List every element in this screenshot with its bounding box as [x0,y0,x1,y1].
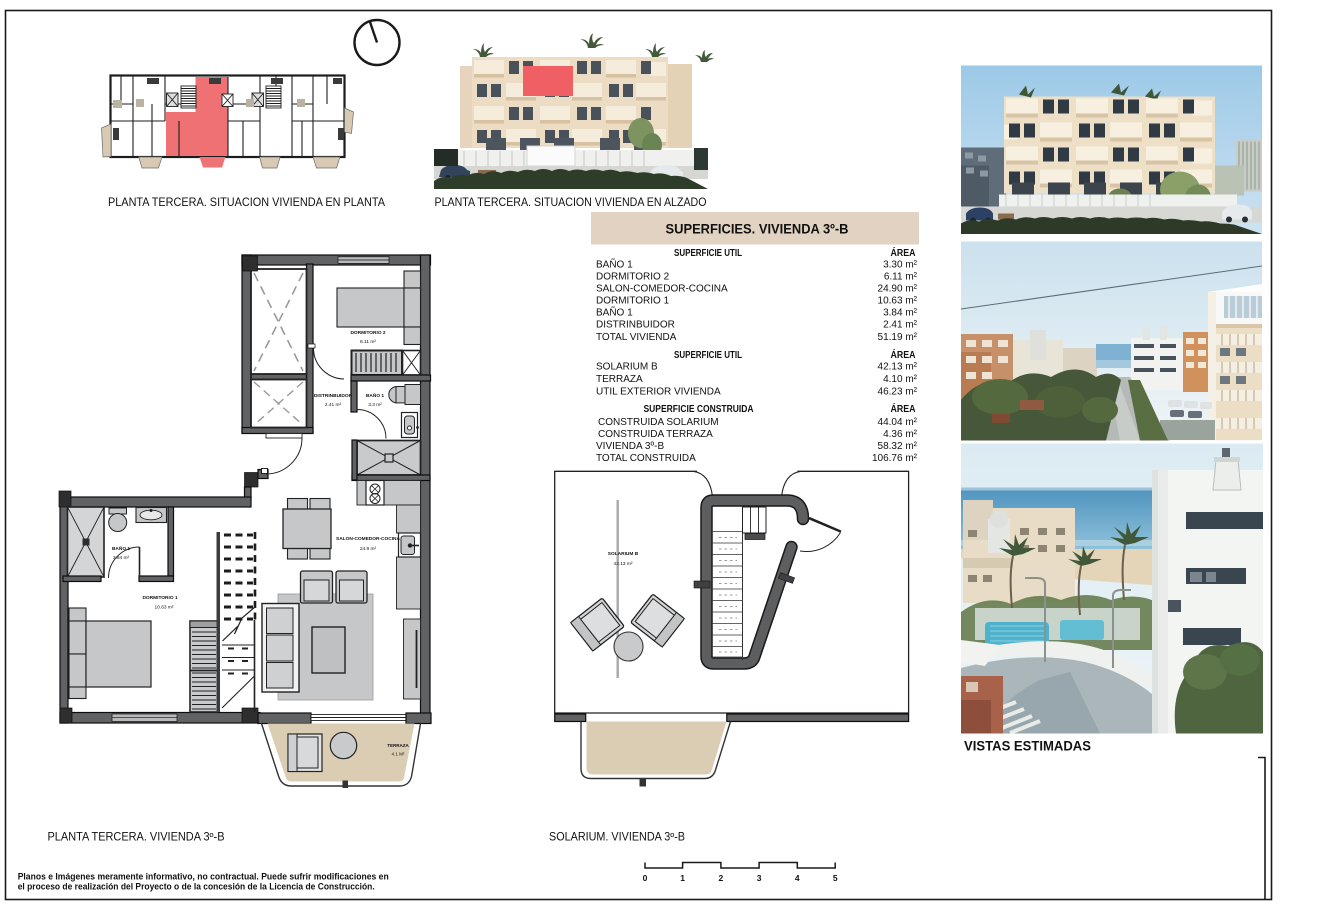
svg-text:CONSTRUIDA SOLARIUM: CONSTRUIDA SOLARIUM [598,417,719,428]
svg-text:44.04 m²: 44.04 m² [878,417,918,428]
svg-text:24.90 m²: 24.90 m² [878,284,918,295]
svg-text:24.9 m²: 24.9 m² [360,546,377,552]
svg-text:TOTAL VIVIENDA: TOTAL VIVIENDA [596,332,677,343]
svg-text:SOLARIUM B: SOLARIUM B [596,362,658,373]
svg-text:SUPERFICIE UTIL: SUPERFICIE UTIL [674,350,742,361]
svg-text:4: 4 [795,873,800,883]
svg-text:4.1 M²: 4.1 M² [392,752,405,757]
svg-text:DORMITORIO 1: DORMITORIO 1 [142,595,177,601]
svg-text:58.32 m²: 58.32 m² [878,441,918,452]
svg-text:DISTRINBUIDOR: DISTRINBUIDOR [596,320,675,331]
svg-text:SALON-COMEDOR-COCINA: SALON-COMEDOR-COCINA [336,536,400,542]
svg-text:3.30 m²: 3.30 m² [883,260,918,271]
svg-text:TERRAZA: TERRAZA [596,374,643,385]
svg-text:DORMITORIO 1: DORMITORIO 1 [596,296,670,307]
svg-text:BAÑO 1: BAÑO 1 [112,545,130,552]
svg-text:Planos e Imágenes meramente in: Planos e Imágenes meramente informativo,… [18,872,389,882]
svg-text:TOTAL CONSTRUIDA: TOTAL CONSTRUIDA [596,453,696,464]
svg-text:VISTAS ESTIMADAS: VISTAS ESTIMADAS [964,738,1091,754]
svg-text:51.19 m²: 51.19 m² [878,332,918,343]
svg-text:SOLARIUM B: SOLARIUM B [608,551,639,557]
svg-text:SOLARIUM. VIVIENDA 3º-B: SOLARIUM. VIVIENDA 3º-B [549,832,685,844]
svg-text:4.36 m²: 4.36 m² [883,429,918,440]
svg-text:el proceso de realización del: el proceso de realización del Proyecto o… [18,882,375,892]
svg-text:2: 2 [719,873,724,883]
svg-text:6.11 m²: 6.11 m² [884,272,918,283]
svg-text:PLANTA TERCERA. SITUACION VIVI: PLANTA TERCERA. SITUACION VIVIENDA EN PL… [108,197,385,209]
svg-text:ÁREA: ÁREA [891,348,916,361]
svg-text:ÁREA: ÁREA [891,402,916,415]
svg-text:42.13 m²: 42.13 m² [878,362,918,373]
svg-text:CONSTRUIDA TERRAZA: CONSTRUIDA TERRAZA [598,429,713,440]
svg-text:BAÑO 1: BAÑO 1 [596,306,633,319]
svg-text:PLANTA TERCERA. VIVIENDA 3º-B: PLANTA TERCERA. VIVIENDA 3º-B [48,832,225,844]
svg-text:TERRAZA: TERRAZA [387,743,409,748]
svg-text:SUPERFICIE UTIL: SUPERFICIE UTIL [674,248,742,259]
svg-text:BAÑO 1: BAÑO 1 [366,392,384,399]
svg-text:PLANTA TERCERA. SITUACION VIVI: PLANTA TERCERA. SITUACION VIVIENDA EN AL… [435,197,707,209]
svg-text:1: 1 [680,873,685,883]
svg-text:ÁREA: ÁREA [891,246,916,259]
svg-text:3.3 m²: 3.3 m² [368,402,382,408]
svg-text:10.63 m²: 10.63 m² [878,296,918,307]
svg-text:3: 3 [757,873,762,883]
svg-text:0: 0 [643,873,648,883]
svg-text:42.13 m²: 42.13 m² [614,561,633,567]
svg-text:BAÑO 1: BAÑO 1 [596,258,633,271]
svg-text:UTIL EXTERIOR VIVIENDA: UTIL EXTERIOR VIVIENDA [596,387,721,398]
svg-text:106.76 m²: 106.76 m² [872,453,918,464]
svg-text:DISTRINBUIDOR: DISTRINBUIDOR [314,393,353,399]
svg-text:2.41 m²: 2.41 m² [325,402,342,408]
svg-text:SUPERFICIES. VIVIENDA 3º-B: SUPERFICIES. VIVIENDA 3º-B [666,221,849,237]
svg-text:SALON-COMEDOR-COCINA: SALON-COMEDOR-COCINA [596,284,728,295]
svg-text:2.41 m²: 2.41 m² [883,320,918,331]
svg-text:DORMITORIO 2: DORMITORIO 2 [596,272,670,283]
svg-text:DORMITORIO 2: DORMITORIO 2 [350,330,385,336]
svg-text:10.63 m²: 10.63 m² [155,605,174,611]
svg-text:VIVIENDA 3º-B: VIVIENDA 3º-B [596,441,664,452]
svg-text:5: 5 [833,873,838,883]
svg-text:8.11 m²: 8.11 m² [360,339,376,345]
svg-text:46.23 m²: 46.23 m² [878,387,918,398]
svg-text:3.84 m²: 3.84 m² [883,308,918,319]
svg-text:4.10 m²: 4.10 m² [883,374,918,385]
svg-text:SUPERFICIE CONSTRUIDA: SUPERFICIE CONSTRUIDA [644,404,754,415]
